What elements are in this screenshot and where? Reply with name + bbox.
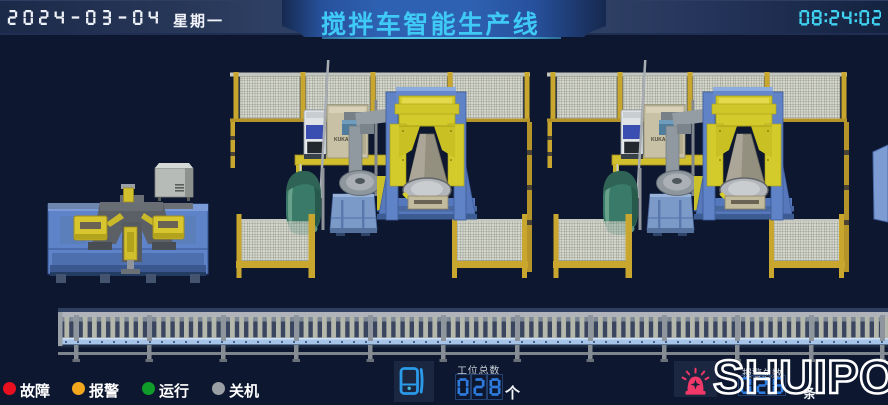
svg-text:KUKA: KUKA [334, 137, 349, 143]
